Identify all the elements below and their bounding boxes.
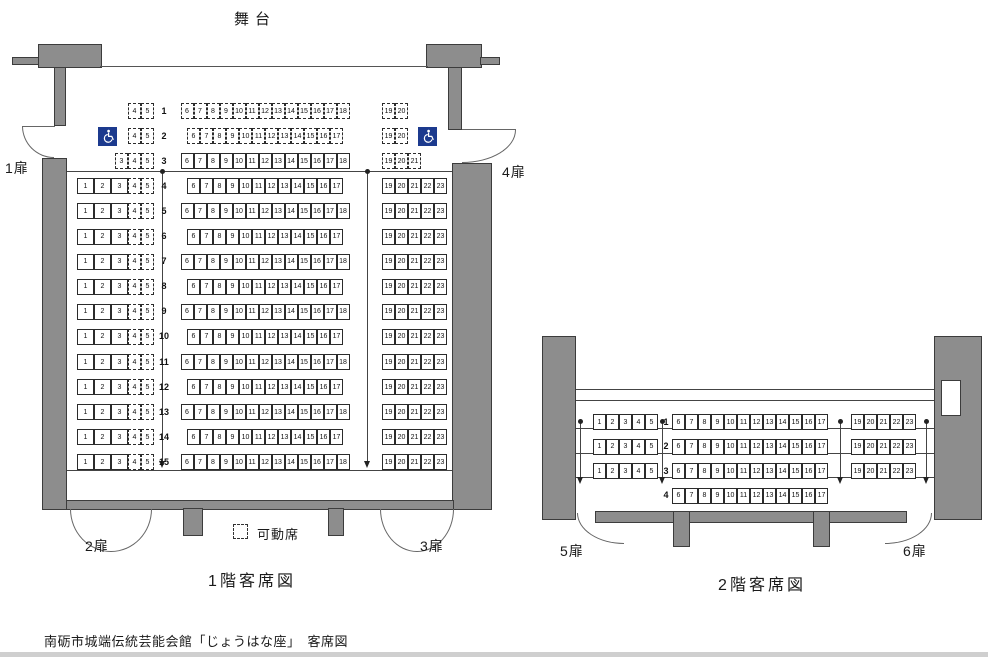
seat-6: 6 (672, 463, 685, 479)
seat-block: 12345 (593, 463, 659, 479)
seat-23: 23 (903, 439, 916, 455)
seat-12: 12 (750, 439, 763, 455)
seat-block: 1920212223 (851, 414, 917, 430)
seat-5: 5 (645, 439, 658, 455)
seat-row-4: 467891011121314151617 (0, 488, 988, 504)
seat-11: 11 (737, 414, 750, 430)
seat-13: 13 (763, 414, 776, 430)
seat-2: 2 (606, 414, 619, 430)
seat-16: 16 (802, 463, 815, 479)
seat-8: 8 (698, 439, 711, 455)
seat-10: 10 (724, 414, 737, 430)
seat-block: 12345 (593, 439, 659, 455)
seat-7: 7 (685, 463, 698, 479)
venue-caption: 南砺市城端伝統芸能会館「じょうはな座」 客席図 (44, 631, 348, 650)
seat-block: 67891011121314151617 (672, 488, 828, 504)
seat-8: 8 (698, 414, 711, 430)
seat-row-1: 123451678910111213141516171920212223 (0, 414, 988, 430)
seat-row-2: 123452678910111213141516171920212223 (0, 439, 988, 455)
seat-21: 21 (877, 414, 890, 430)
seat-16: 16 (802, 488, 815, 504)
seat-9: 9 (711, 463, 724, 479)
seat-22: 22 (890, 439, 903, 455)
seat-9: 9 (711, 414, 724, 430)
seat-22: 22 (890, 414, 903, 430)
seat-20: 20 (864, 439, 877, 455)
seat-block: 1920212223 (851, 463, 917, 479)
seat-block: 1920212223 (851, 439, 917, 455)
seat-7: 7 (685, 439, 698, 455)
seat-3: 3 (619, 414, 632, 430)
seat-20: 20 (864, 414, 877, 430)
seat-12: 12 (750, 488, 763, 504)
seat-8: 8 (698, 463, 711, 479)
seat-6: 6 (672, 439, 685, 455)
seat-14: 14 (776, 463, 789, 479)
seat-15: 15 (789, 439, 802, 455)
seat-block: 67891011121314151617 (672, 414, 828, 430)
seat-7: 7 (685, 414, 698, 430)
seat-1: 1 (593, 439, 606, 455)
seat-10: 10 (724, 439, 737, 455)
seat-19: 19 (851, 414, 864, 430)
seat-9: 9 (711, 439, 724, 455)
seat-1: 1 (593, 463, 606, 479)
seat-17: 17 (815, 463, 828, 479)
seat-11: 11 (737, 463, 750, 479)
seat-21: 21 (877, 439, 890, 455)
seat-block: 67891011121314151617 (672, 439, 828, 455)
seat-11: 11 (737, 488, 750, 504)
seat-16: 16 (802, 414, 815, 430)
seat-6: 6 (672, 488, 685, 504)
seat-15: 15 (789, 488, 802, 504)
seat-9: 9 (711, 488, 724, 504)
seat-3: 3 (619, 463, 632, 479)
seat-21: 21 (877, 463, 890, 479)
seat-17: 17 (815, 439, 828, 455)
seat-12: 12 (750, 463, 763, 479)
seat-5: 5 (645, 463, 658, 479)
seat-4: 4 (632, 463, 645, 479)
seat-13: 13 (763, 439, 776, 455)
seat-block: 67891011121314151617 (672, 463, 828, 479)
seat-12: 12 (750, 414, 763, 430)
seat-10: 10 (724, 463, 737, 479)
seat-14: 14 (776, 439, 789, 455)
seat-19: 19 (851, 463, 864, 479)
seat-14: 14 (776, 414, 789, 430)
seat-4: 4 (632, 439, 645, 455)
seat-16: 16 (802, 439, 815, 455)
seat-2: 2 (606, 439, 619, 455)
seat-block: 12345 (593, 414, 659, 430)
seat-19: 19 (851, 439, 864, 455)
seat-11: 11 (737, 439, 750, 455)
seat-15: 15 (789, 463, 802, 479)
page-bottom-edge (0, 652, 988, 657)
seat-20: 20 (864, 463, 877, 479)
seat-14: 14 (776, 488, 789, 504)
seat-17: 17 (815, 414, 828, 430)
seat-23: 23 (903, 414, 916, 430)
floor2-rows: 1234516789101112131415161719202122231234… (0, 0, 988, 657)
seat-4: 4 (632, 414, 645, 430)
seat-17: 17 (815, 488, 828, 504)
seat-1: 1 (593, 414, 606, 430)
seat-7: 7 (685, 488, 698, 504)
seat-15: 15 (789, 414, 802, 430)
seat-6: 6 (672, 414, 685, 430)
seat-8: 8 (698, 488, 711, 504)
seat-23: 23 (903, 463, 916, 479)
seat-5: 5 (645, 414, 658, 430)
seat-2: 2 (606, 463, 619, 479)
seat-row-3: 123453678910111213141516171920212223 (0, 463, 988, 479)
seat-13: 13 (763, 488, 776, 504)
seat-22: 22 (890, 463, 903, 479)
seat-10: 10 (724, 488, 737, 504)
seating-chart-page: 舞台 1扉 4扉 2扉 3扉 可動席 1階客席図 (0, 0, 988, 657)
seat-3: 3 (619, 439, 632, 455)
seat-13: 13 (763, 463, 776, 479)
